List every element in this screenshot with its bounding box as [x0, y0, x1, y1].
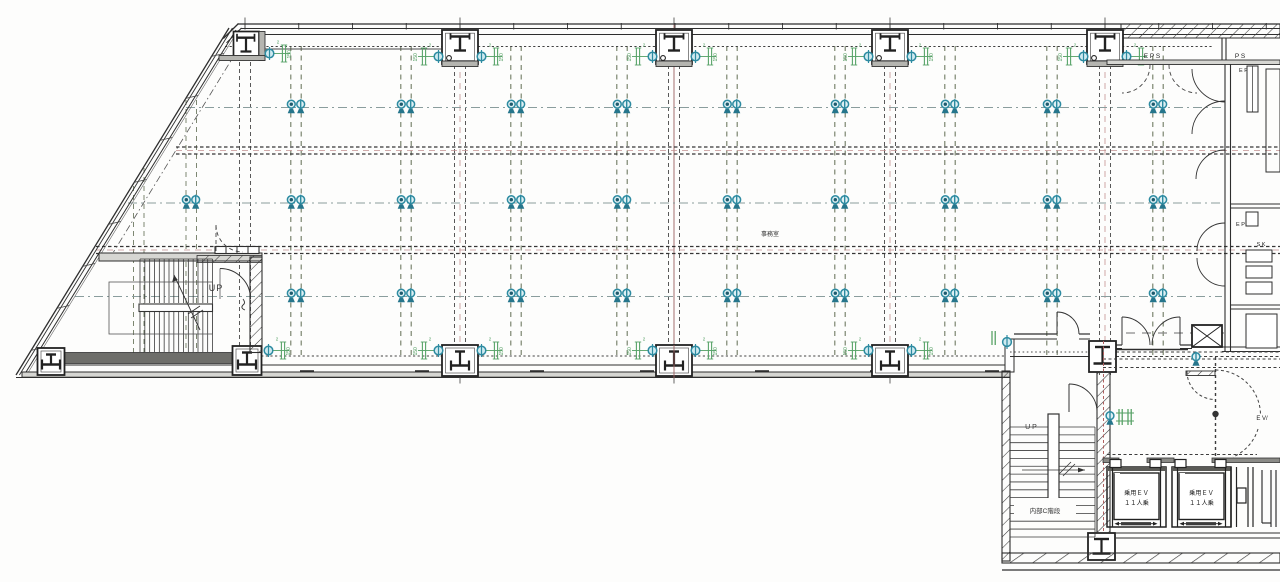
svg-text:150: 150 [286, 347, 292, 356]
svg-text:U P: U P [1025, 424, 1037, 431]
svg-text:150: 150 [627, 347, 633, 356]
svg-text:１１人乗: １１人乗 [1124, 500, 1149, 507]
svg-text:150: 150 [843, 53, 849, 62]
svg-text:乗用ＥＶ: 乗用ＥＶ [1124, 490, 1149, 497]
svg-text:150: 150 [1058, 53, 1064, 62]
svg-text:UP: UP [209, 283, 224, 293]
svg-text:E V/: E V/ [1256, 416, 1268, 422]
svg-text:150: 150 [843, 347, 849, 356]
svg-text:150: 150 [413, 347, 419, 356]
svg-text:事務室: 事務室 [761, 230, 779, 238]
svg-text:150: 150 [929, 53, 935, 62]
svg-text:P S: P S [1235, 53, 1246, 60]
svg-text:S K: S K [1257, 242, 1266, 248]
svg-text:１１人乗: １１人乗 [1189, 500, 1214, 507]
svg-text:150: 150 [713, 347, 719, 356]
svg-text:150: 150 [499, 347, 505, 356]
svg-text:150: 150 [627, 53, 633, 62]
svg-text:E P S: E P S [1144, 53, 1161, 60]
svg-text:150: 150 [499, 53, 505, 62]
svg-text:内部C階段: 内部C階段 [1030, 506, 1061, 515]
svg-text:150: 150 [713, 53, 719, 62]
svg-text:150: 150 [287, 50, 293, 59]
svg-text:150: 150 [413, 53, 419, 62]
svg-text:150: 150 [929, 347, 935, 356]
svg-text:乗用ＥＶ: 乗用ＥＶ [1189, 490, 1214, 497]
